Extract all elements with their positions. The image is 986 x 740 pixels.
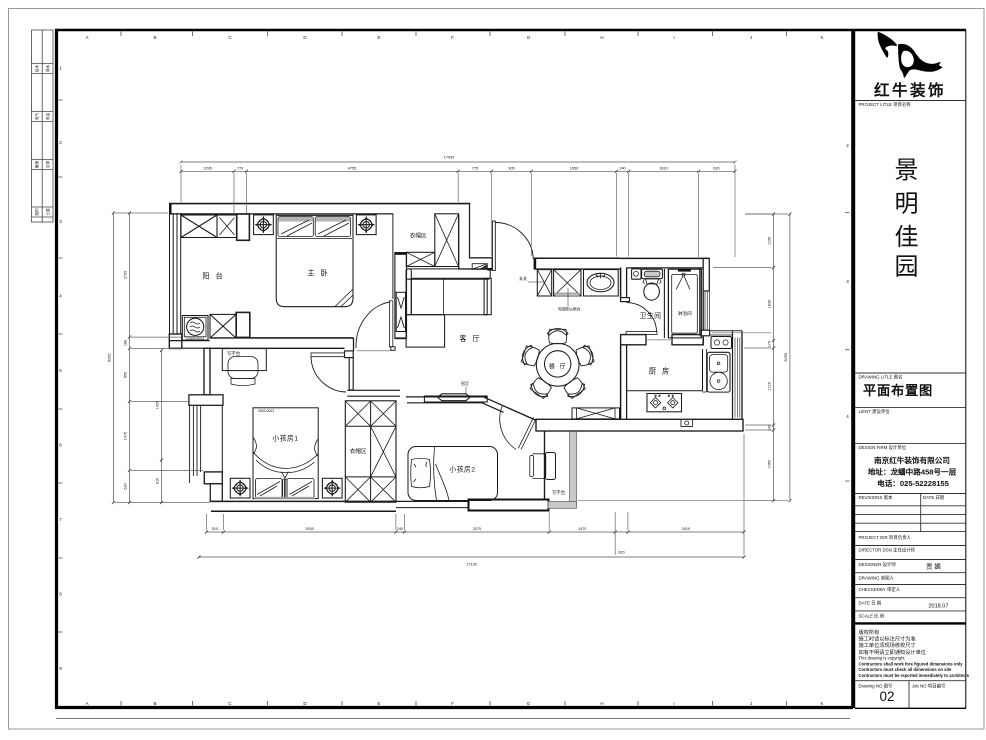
svg-text:Contractors shall work fore fi: Contractors shall work fore figured dime… [859, 661, 964, 666]
svg-text:E: E [377, 35, 380, 40]
svg-text:红牛装饰: 红牛装饰 [874, 81, 946, 100]
svg-text:明: 明 [895, 192, 919, 218]
svg-text:1470: 1470 [578, 527, 586, 531]
svg-text:620: 620 [124, 483, 128, 489]
svg-text:版权所有: 版权所有 [859, 628, 880, 636]
svg-text:5: 5 [59, 368, 62, 373]
svg-text:DIRECTOR DSN 主任设计师: DIRECTOR DSN 主任设计师 [859, 547, 916, 554]
svg-text:A: A [85, 35, 88, 40]
svg-text:卫生间: 卫生间 [640, 311, 662, 320]
svg-text:8255: 8255 [784, 353, 788, 361]
svg-text:J: J [750, 701, 752, 706]
svg-text:写字台: 写字台 [552, 489, 566, 496]
svg-text:6295: 6295 [107, 354, 111, 362]
svg-text:地址：龙蟠中路458号一层: 地址：龙蟠中路458号一层 [868, 467, 957, 477]
svg-text:小孩房1: 小孩房1 [272, 434, 298, 443]
svg-text:9: 9 [59, 666, 62, 671]
svg-text:17599: 17599 [444, 156, 455, 160]
svg-text:PROJECT LITLE 项目名称: PROJECT LITLE 项目名称 [859, 101, 912, 108]
svg-text:贾 媚: 贾 媚 [926, 562, 941, 571]
svg-text:SCALE 比 例: SCALE 比 例 [859, 613, 885, 620]
svg-text:F: F [451, 35, 454, 40]
svg-text:17135: 17135 [466, 563, 477, 567]
svg-text:CHECKEDBY 审定人: CHECKEDBY 审定人 [859, 586, 901, 593]
svg-text:3: 3 [846, 279, 849, 284]
svg-text:7: 7 [59, 517, 62, 522]
svg-text:770: 770 [237, 167, 243, 171]
svg-text:G: G [527, 701, 531, 706]
svg-text:淋浴间: 淋浴间 [678, 310, 692, 317]
svg-text:施工单位须现场核校尺寸: 施工单位须现场核校尺寸 [859, 641, 916, 649]
svg-text:2018.07: 2018.07 [929, 604, 949, 610]
svg-text:1295: 1295 [203, 167, 211, 171]
svg-text:J: J [750, 35, 752, 40]
svg-text:55-E: 55-E [461, 383, 469, 387]
svg-text:1: 1 [59, 66, 62, 71]
svg-text:3930: 3930 [305, 527, 313, 531]
svg-text:620: 620 [713, 167, 719, 171]
svg-text:1650: 1650 [570, 167, 578, 171]
svg-text:玄关: 玄关 [519, 275, 527, 281]
svg-text:2705: 2705 [124, 271, 128, 279]
svg-text:电话：025-52228155: 电话：025-52228155 [877, 478, 950, 488]
svg-text:施工时请以标注尺寸为准: 施工时请以标注尺寸为准 [859, 635, 916, 643]
svg-text:F: F [451, 701, 454, 706]
svg-text:餐 厅: 餐 厅 [549, 363, 567, 371]
svg-text:140: 140 [768, 425, 772, 431]
svg-text:DESIGN FIRM 设计单位: DESIGN FIRM 设计单位 [859, 444, 907, 451]
svg-text:园: 园 [895, 255, 919, 281]
svg-text:DRAWING 制图人: DRAWING 制图人 [859, 574, 895, 581]
svg-text:170: 170 [768, 341, 772, 347]
svg-text:3410: 3410 [682, 527, 690, 531]
svg-text:6: 6 [59, 443, 62, 448]
svg-text:1195: 1195 [768, 237, 772, 245]
svg-text:1715: 1715 [768, 382, 772, 390]
svg-text:4755: 4755 [348, 167, 356, 171]
svg-text:650: 650 [124, 372, 128, 378]
svg-text:610: 610 [156, 478, 160, 484]
svg-text:Job NO 项目编号: Job NO 项目编号 [912, 683, 946, 690]
svg-text:H: H [600, 701, 603, 706]
svg-text:I: I [673, 701, 674, 706]
svg-text:电视柜&地台: 电视柜&地台 [558, 306, 581, 312]
svg-text:3275: 3275 [473, 527, 481, 531]
svg-text:8: 8 [59, 592, 62, 597]
svg-text:905: 905 [508, 167, 514, 171]
svg-text:空调: 空调 [45, 161, 50, 169]
svg-text:D: D [303, 701, 307, 706]
svg-text:厨 房: 厨 房 [649, 367, 671, 376]
svg-text:C: C [228, 35, 232, 40]
svg-text:电气: 电气 [34, 113, 39, 121]
svg-text:1810: 1810 [659, 167, 667, 171]
svg-text:Contractors must be reported i: Contractors must be reported immediately… [859, 673, 970, 678]
svg-text:775: 775 [472, 167, 478, 171]
svg-text:排水: 排水 [45, 65, 50, 73]
svg-text:G: G [527, 35, 531, 40]
svg-text:写字台: 写字台 [227, 350, 241, 357]
svg-text:K: K [820, 701, 823, 706]
svg-text:3: 3 [59, 219, 62, 224]
svg-text:暖通: 暖通 [34, 161, 39, 169]
svg-text:景: 景 [895, 158, 919, 184]
svg-text:4: 4 [846, 414, 849, 419]
svg-text:DRAWING LITLE 图名: DRAWING LITLE 图名 [859, 374, 903, 381]
svg-text:LIENT 建设单位: LIENT 建设单位 [859, 408, 891, 415]
svg-text:主 卧: 主 卧 [307, 269, 329, 278]
svg-text:B: B [153, 35, 156, 40]
svg-text:结构: 结构 [34, 208, 39, 216]
svg-text:DATE 日期: DATE 日期 [923, 495, 945, 501]
svg-text:土建: 土建 [45, 208, 50, 216]
svg-text:客 厅: 客 厅 [459, 334, 481, 343]
svg-text:衣帽区: 衣帽区 [410, 232, 427, 240]
svg-text:如有不明请立即通知设计单位: 如有不明请立即通知设计单位 [859, 648, 926, 656]
svg-text:南京红牛装饰有限公司: 南京红牛装饰有限公司 [874, 455, 950, 465]
svg-text:电话: 电话 [45, 113, 50, 121]
svg-text:1630: 1630 [768, 300, 772, 308]
svg-text:给水: 给水 [34, 65, 39, 73]
svg-text:Contractors must check all dim: Contractors must check all dimensions on… [859, 667, 953, 672]
svg-text:C: C [228, 701, 232, 706]
svg-text:REVISIONS 版本: REVISIONS 版本 [859, 494, 894, 501]
svg-text:DESIGNER 设计师: DESIGNER 设计师 [859, 561, 897, 568]
svg-text:240: 240 [397, 527, 403, 531]
svg-text:240: 240 [619, 167, 625, 171]
svg-text:2: 2 [59, 140, 62, 145]
svg-text:2: 2 [846, 143, 849, 148]
svg-text:This drawing is copyright: This drawing is copyright [859, 656, 906, 661]
svg-text:02: 02 [879, 689, 894, 704]
svg-text:1500*2000: 1500*2000 [258, 409, 275, 413]
svg-text:1425: 1425 [156, 401, 160, 409]
svg-text:K: K [820, 35, 823, 40]
svg-text:D: D [303, 35, 307, 40]
svg-text:XQB60-M918: XQB60-M918 [186, 337, 205, 341]
svg-text:DATE 日 期: DATE 日 期 [859, 600, 882, 606]
svg-text:1450: 1450 [768, 460, 772, 468]
svg-text:180: 180 [124, 340, 128, 346]
svg-text:H: H [600, 35, 603, 40]
svg-text:小孩房2: 小孩房2 [449, 465, 475, 474]
svg-text:E: E [377, 701, 380, 706]
svg-text:B: B [153, 701, 156, 706]
svg-text:PROJECT DIR 项目负责人: PROJECT DIR 项目负责人 [859, 534, 912, 541]
svg-text:620: 620 [618, 551, 624, 555]
svg-text:佳: 佳 [895, 224, 919, 251]
svg-text:1475: 1475 [124, 432, 128, 440]
svg-text:阳 台: 阳 台 [202, 272, 224, 281]
svg-text:衣帽区: 衣帽区 [350, 447, 367, 455]
svg-text:510: 510 [212, 527, 218, 531]
svg-text:平面布置图: 平面布置图 [863, 382, 933, 398]
svg-text:A: A [85, 701, 88, 706]
svg-text:4: 4 [59, 294, 62, 299]
svg-text:I: I [673, 35, 674, 40]
